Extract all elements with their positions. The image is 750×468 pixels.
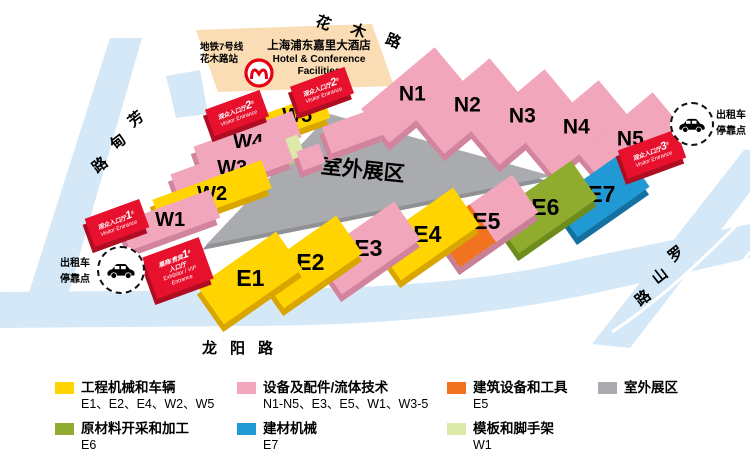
legend-swatch-blue xyxy=(237,423,256,435)
taxi-stop-east-label: 出租车 停靠点 xyxy=(716,108,746,139)
legend-swatch-gray xyxy=(598,382,617,394)
legend-item-building-equipment: 建筑设备和工具 E5 xyxy=(447,380,568,412)
legend-item-raw-materials: 原材料开采和加工 E6 xyxy=(55,421,189,453)
taxi-west-line2: 停靠点 xyxy=(40,272,90,288)
metro-station: 花木路站 xyxy=(200,54,243,66)
hall-w1-label: W1 xyxy=(155,209,185,232)
legend-halls-6: W1 xyxy=(473,437,554,453)
taxi-icon-west xyxy=(105,260,137,280)
legend-title-5: 建材机械 xyxy=(263,421,317,437)
legend-title-4: 原材料开采和加工 xyxy=(81,421,189,437)
legend-halls-0: E1、E2、E4、W2、W5 xyxy=(81,396,214,412)
entrance-3-sup: # xyxy=(665,140,670,147)
hotel-label: 上海浦东嘉里大酒店 Hotel & Conference Facilities xyxy=(248,40,390,78)
entrance-2n-sup: # xyxy=(335,76,340,83)
hotel-name-cn: 上海浦东嘉里大酒店 xyxy=(248,40,390,54)
hall-n3-label: N3 xyxy=(509,105,536,129)
hall-n2-label: N2 xyxy=(454,94,481,118)
legend-title-0: 工程机械和车辆 xyxy=(81,380,214,396)
legend-swatch-olive xyxy=(55,423,74,435)
legend-item-construction-machinery: 工程机械和车辆 E1、E2、E4、W2、W5 xyxy=(55,380,214,412)
taxi-west-line1: 出租车 xyxy=(40,256,90,272)
legend-halls-1: N1-N5、E3、E5、W1、W3-5 xyxy=(263,396,428,412)
metro-station-label: 地铁7号线 花木路站 xyxy=(200,42,243,67)
taxi-stop-west-label: 出租车 停靠点 xyxy=(40,256,90,287)
legend-item-building-materials: 建材机械 E7 xyxy=(237,421,317,453)
entrance-2w-sup: # xyxy=(250,99,255,106)
taxi-east-line1: 出租车 xyxy=(716,108,746,124)
legend-swatch-lightgreen xyxy=(447,423,466,435)
legend-swatch-yellow xyxy=(55,382,74,394)
legend-title-6: 模板和脚手架 xyxy=(473,421,554,437)
legend-halls-2: E5 xyxy=(473,396,568,412)
hall-e2-label: E2 xyxy=(296,249,324,276)
taxi-stop-west xyxy=(97,246,145,294)
taxi-east-line2: 停靠点 xyxy=(716,124,746,140)
legend-item-formwork-scaffolding: 模板和脚手架 W1 xyxy=(447,421,554,453)
legend-title-3: 室外展区 xyxy=(624,380,678,396)
legend-title-1: 设备及配件/流体技术 xyxy=(263,380,428,396)
hotel-name-en1: Hotel & Conference xyxy=(248,54,390,66)
hall-e1-label: E1 xyxy=(236,265,264,292)
metro-line: 地铁7号线 xyxy=(200,42,243,54)
expo-map: 花 木 路 芳 甸 路 罗 山 路 龙阳路 地铁7号线 花木路站 上海浦东嘉里大… xyxy=(0,0,750,468)
road-name-bottom: 龙阳路 xyxy=(202,337,286,358)
taxi-icon-east xyxy=(677,115,707,134)
hall-n4-label: N4 xyxy=(563,116,590,140)
hall-n1-label: N1 xyxy=(399,83,426,107)
legend-swatch-pink xyxy=(237,382,256,394)
legend-swatch-orange xyxy=(447,382,466,394)
legend-title-2: 建筑设备和工具 xyxy=(473,380,568,396)
taxi-stop-east xyxy=(670,102,714,146)
entrance-1-sup: # xyxy=(130,209,135,216)
legend-item-equipment-fluid: 设备及配件/流体技术 N1-N5、E3、E5、W1、W3-5 xyxy=(237,380,428,412)
legend-halls-5: E7 xyxy=(263,437,317,453)
legend-item-outdoor-area: 室外展区 xyxy=(598,380,678,396)
vip-entrance-sup: # xyxy=(187,249,192,256)
legend-halls-4: E6 xyxy=(81,437,189,453)
